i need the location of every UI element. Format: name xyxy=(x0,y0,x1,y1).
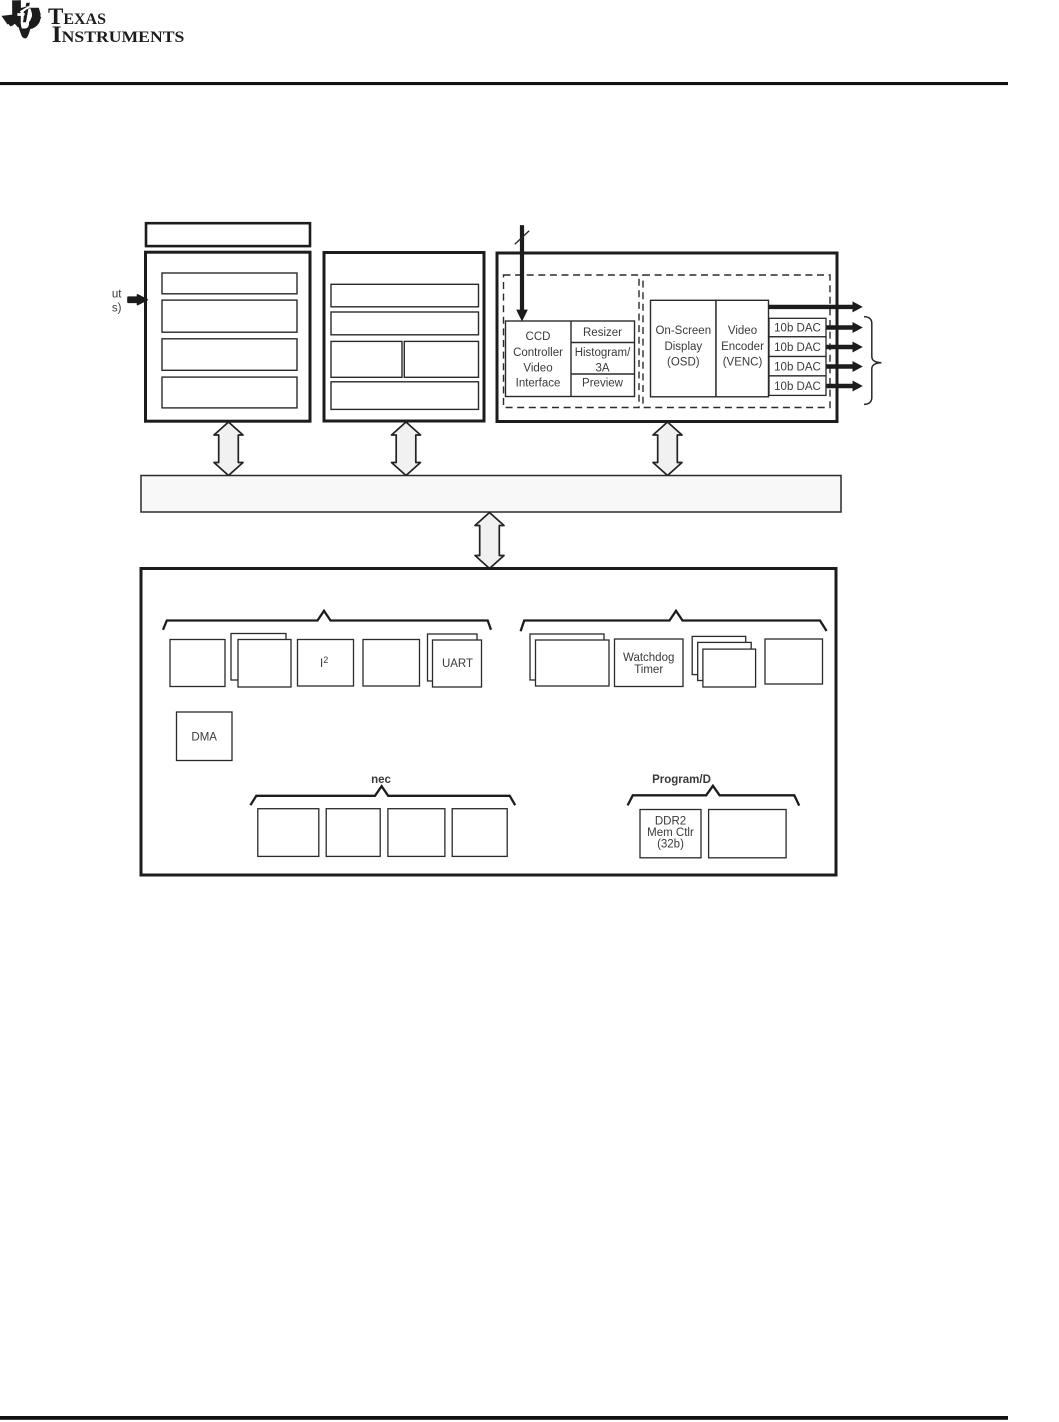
svg-text:Encoder: Encoder xyxy=(721,341,764,353)
svg-text:3A: 3A xyxy=(595,362,609,374)
svg-text:UART: UART xyxy=(442,658,473,670)
svg-text:CCD: CCD xyxy=(526,331,551,343)
svg-text:Program/D: Program/D xyxy=(652,774,711,786)
svg-text:Histogram/: Histogram/ xyxy=(575,347,631,359)
svg-text:(32b): (32b) xyxy=(657,839,684,851)
svg-text:Video: Video xyxy=(728,325,757,337)
svg-text:Preview: Preview xyxy=(582,378,624,390)
svg-text:10b DAC: 10b DAC xyxy=(774,362,821,374)
svg-text:Mem Ctlr: Mem Ctlr xyxy=(647,827,694,839)
svg-text:10b DAC: 10b DAC xyxy=(774,323,821,335)
svg-text:(VENC): (VENC) xyxy=(723,357,763,369)
svg-text:Resizer: Resizer xyxy=(583,327,622,339)
svg-text:Display: Display xyxy=(664,341,702,353)
svg-text:Interface: Interface xyxy=(516,378,561,390)
svg-text:s): s) xyxy=(112,303,122,315)
svg-text:Video: Video xyxy=(523,362,552,374)
svg-text:DMA: DMA xyxy=(191,732,217,744)
svg-text:Controller: Controller xyxy=(513,347,563,359)
svg-text:Timer: Timer xyxy=(634,664,663,676)
svg-text:nec: nec xyxy=(371,774,391,786)
svg-text:On-Screen: On-Screen xyxy=(655,325,711,337)
svg-text:ut: ut xyxy=(112,289,122,301)
svg-text:Instruments: Instruments xyxy=(52,22,185,47)
svg-text:10b DAC: 10b DAC xyxy=(774,381,821,393)
svg-text:(OSD): (OSD) xyxy=(667,357,700,369)
svg-text:10b DAC: 10b DAC xyxy=(774,342,821,354)
svg-text:Watchdog: Watchdog xyxy=(623,652,674,664)
svg-text:DDR2: DDR2 xyxy=(655,815,686,827)
